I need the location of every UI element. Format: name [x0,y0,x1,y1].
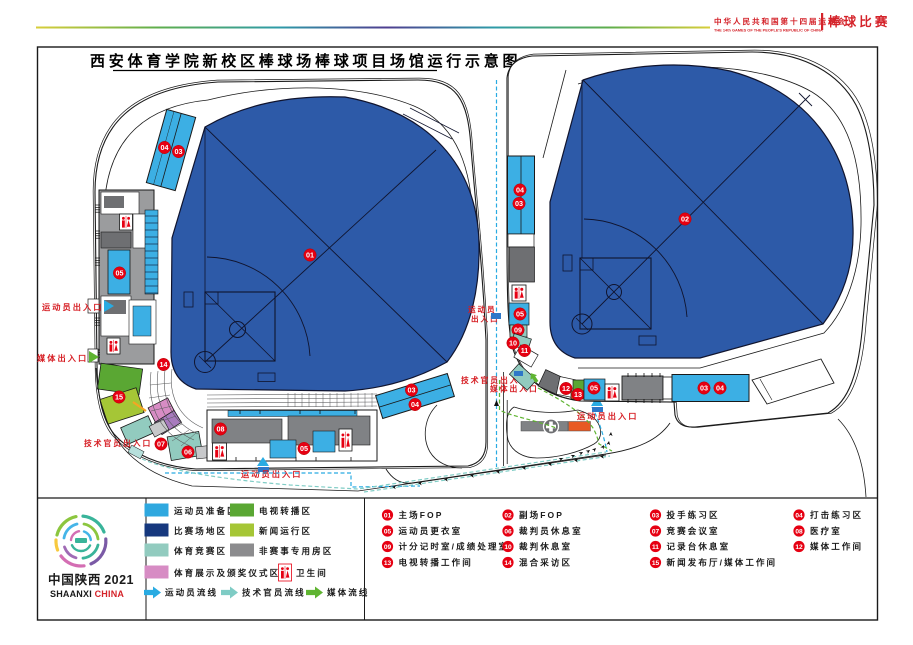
svg-text:卫生间: 卫生间 [296,568,328,578]
svg-text:新闻运行区: 新闻运行区 [259,526,312,536]
svg-text:03: 03 [652,512,660,519]
svg-text:运动员: 运动员 [468,304,496,314]
svg-text:技术官员出入口: 技术官员出入口 [84,438,152,448]
svg-text:运动员流线: 运动员流线 [165,588,218,598]
svg-text:运动员准备区: 运动员准备区 [174,506,238,516]
svg-text:05: 05 [116,269,124,278]
svg-text:12: 12 [795,544,803,551]
svg-text:06: 06 [504,528,512,535]
svg-text:体育展示及颁奖仪式区: 体育展示及颁奖仪式区 [174,568,280,578]
svg-text:01: 01 [384,512,392,519]
svg-text:投手练习区: 投手练习区 [667,510,720,520]
svg-text:15: 15 [115,393,123,402]
svg-text:05: 05 [590,384,598,393]
svg-text:15: 15 [652,560,660,567]
svg-text:10: 10 [509,339,517,348]
svg-text:西安体育学院新校区棒球场棒球项目场馆运行示意图: 西安体育学院新校区棒球场棒球项目场馆运行示意图 [90,52,521,70]
svg-text:13: 13 [574,390,582,399]
svg-text:非赛事专用房区: 非赛事专用房区 [259,546,333,556]
svg-text:记录台休息室: 记录台休息室 [667,542,731,552]
svg-text:04: 04 [411,400,419,409]
svg-text:01: 01 [306,251,314,260]
svg-text:媒体流线: 媒体流线 [326,588,369,598]
svg-text:03: 03 [515,199,523,208]
svg-text:电视转播区: 电视转播区 [259,506,312,516]
svg-text:副场FOP: 副场FOP [519,510,564,520]
svg-text:04: 04 [516,186,524,195]
svg-text:SHAANXI CHINA: SHAANXI CHINA [50,589,124,599]
svg-text:07: 07 [652,528,660,535]
svg-text:中华人民共和国第十四届运动会: 中华人民共和国第十四届运动会 [714,16,847,26]
svg-text:11: 11 [652,544,659,551]
svg-text:14: 14 [160,360,168,369]
svg-text:05: 05 [300,444,308,453]
svg-text:02: 02 [504,512,512,519]
svg-text:06: 06 [184,448,192,457]
svg-text:技术官员流线: 技术官员流线 [242,588,306,598]
svg-text:运动员更衣室: 运动员更衣室 [399,526,463,536]
svg-text:新闻发布厅/媒体工作间: 新闻发布厅/媒体工作间 [667,558,778,568]
svg-text:棒球比赛: 棒球比赛 [828,14,890,29]
svg-text:运动员出入口: 运动员出入口 [241,469,302,479]
svg-text:09: 09 [384,544,392,551]
svg-text:08: 08 [795,528,803,535]
svg-text:混合采访区: 混合采访区 [519,558,572,568]
svg-text:02: 02 [681,215,689,224]
svg-text:裁判员休息室: 裁判员休息室 [519,526,583,536]
svg-text:媒体工作间: 媒体工作间 [809,542,863,552]
svg-text:09: 09 [514,326,522,335]
svg-text:11: 11 [521,346,529,355]
svg-text:中国陕西2021: 中国陕西2021 [48,572,134,587]
svg-text:体育竞赛区: 体育竞赛区 [174,546,227,556]
svg-text:03: 03 [700,384,708,393]
svg-text:13: 13 [384,560,392,567]
svg-text:08: 08 [217,425,225,434]
svg-text:竞赛会议室: 竞赛会议室 [666,526,720,536]
svg-text:07: 07 [157,440,165,449]
svg-text:计分记时室/成绩处理室: 计分记时室/成绩处理室 [399,542,510,552]
svg-text:03: 03 [175,147,183,156]
svg-text:医疗室: 医疗室 [810,526,842,536]
svg-text:12: 12 [562,384,570,393]
svg-text:03: 03 [408,386,416,395]
svg-text:04: 04 [795,512,803,519]
svg-text:裁判休息室: 裁判休息室 [519,542,572,552]
svg-text:14: 14 [504,560,512,567]
svg-text:电视转播工作间: 电视转播工作间 [399,558,473,568]
svg-text:打击练习区: 打击练习区 [810,510,863,520]
svg-text:05: 05 [384,528,392,535]
svg-text:运动员出入口: 运动员出入口 [42,302,103,312]
svg-text:运动员出入口: 运动员出入口 [577,411,638,421]
svg-text:主场FOP: 主场FOP [399,510,444,520]
svg-text:04: 04 [161,143,169,152]
svg-text:05: 05 [516,310,524,319]
svg-text:THE 14th GAMES OF THE PEOPLE'S: THE 14th GAMES OF THE PEOPLE'S REPUBLIC … [714,28,823,33]
svg-text:媒体出入口: 媒体出入口 [36,353,88,363]
svg-text:比赛场地区: 比赛场地区 [174,526,227,536]
svg-text:04: 04 [716,384,724,393]
svg-text:10: 10 [504,544,512,551]
